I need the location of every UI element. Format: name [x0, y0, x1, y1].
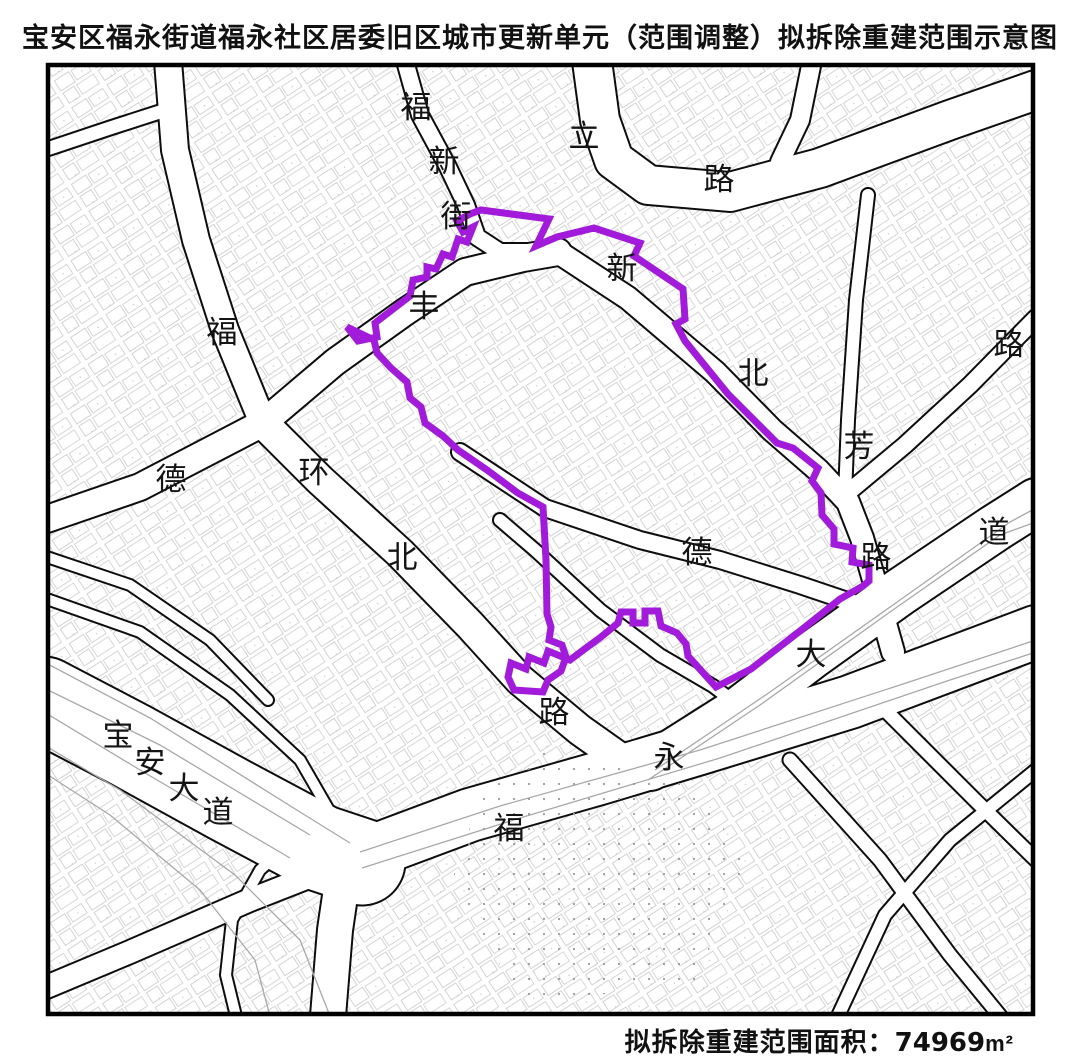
road-label-7: 芳: [844, 429, 875, 464]
area-unit: m²: [985, 1031, 1014, 1056]
road-label-10: 福: [207, 315, 238, 350]
road-label-18: 路: [994, 327, 1025, 362]
road-label-5: 新: [607, 251, 638, 286]
road-label-19: 宝: [103, 718, 134, 753]
road-label-15: 德: [682, 535, 713, 570]
area-caption-label: 拟拆除重建范围面积：: [625, 1027, 895, 1057]
road-south-branch: [328, 862, 345, 1016]
road-label-16: 大: [796, 637, 827, 672]
road-label-8: 路: [861, 540, 892, 575]
road-label-21: 大: [169, 771, 200, 806]
road-label-11: 德: [156, 462, 187, 497]
road-label-2: 街: [441, 199, 472, 234]
map-content: 福新街立路新北芳路丰福德环北路德大道路宝安大道福永: [44, 61, 1036, 1016]
road-label-22: 道: [203, 795, 234, 830]
map-canvas: 福新街立路新北芳路丰福德环北路德大道路宝安大道福永: [0, 0, 1080, 1061]
road-label-9: 丰: [409, 289, 440, 324]
road-label-1: 新: [429, 144, 460, 179]
road-label-3: 立: [569, 119, 600, 154]
area-value: 74969: [895, 1028, 985, 1058]
road-label-12: 环: [299, 455, 330, 490]
area-caption: 拟拆除重建范围面积：74969m²: [625, 1022, 1014, 1059]
road-label-24: 永: [654, 740, 685, 775]
road-label-0: 福: [401, 90, 432, 125]
road-label-6: 北: [738, 356, 769, 391]
road-label-17: 道: [979, 515, 1010, 550]
road-label-13: 北: [387, 540, 418, 575]
map-sheet: 宝安区福永街道福永社区居委旧区城市更新单元（范围调整）拟拆除重建范围示意图: [0, 0, 1080, 1061]
road-label-23: 福: [494, 811, 525, 846]
road-label-14: 路: [539, 695, 570, 730]
road-label-20: 安: [135, 745, 166, 780]
road-label-4: 路: [704, 162, 735, 197]
